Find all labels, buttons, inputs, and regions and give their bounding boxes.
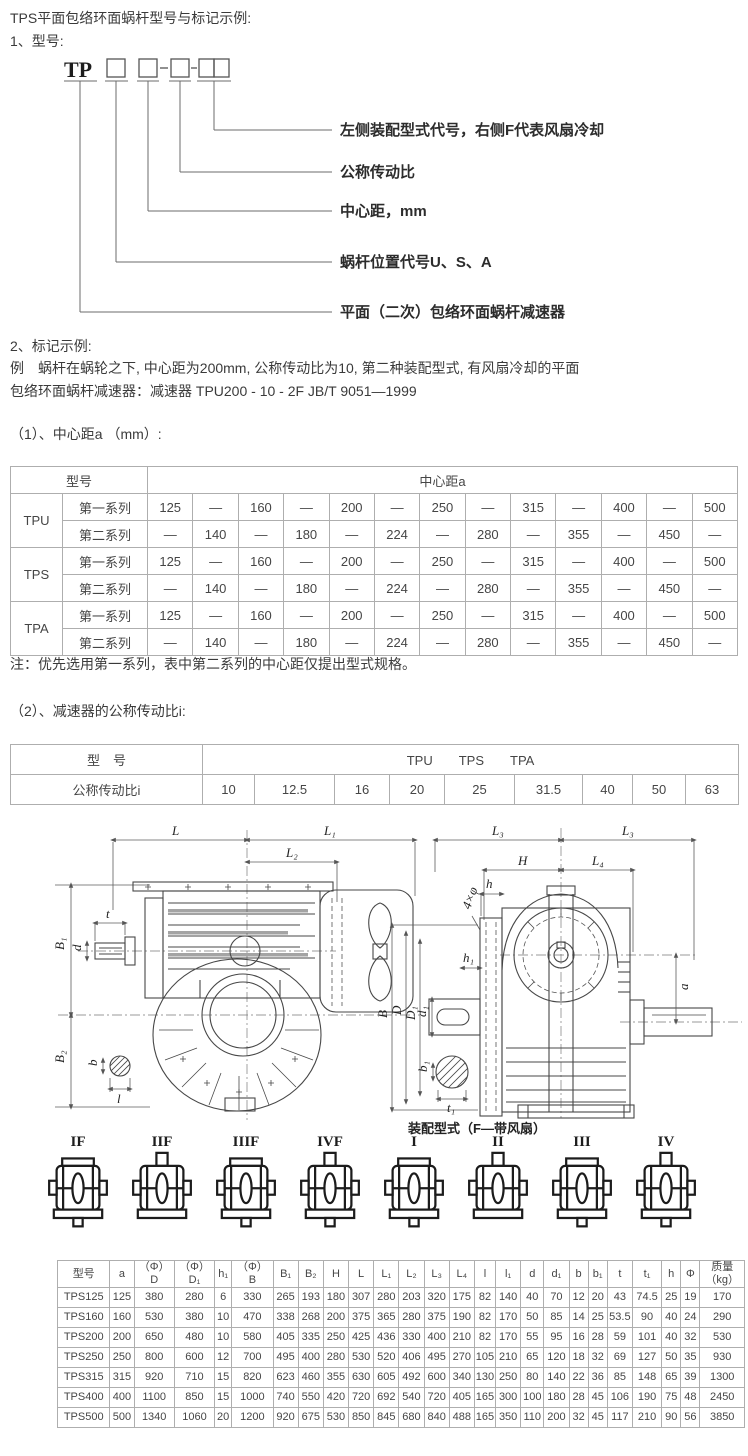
table-cell: 165 (474, 1388, 495, 1408)
table-cell: b (569, 1261, 588, 1288)
table-cell: 22 (569, 1368, 588, 1388)
example-line1: 例 蜗杆在蜗轮之下, 中心距为200mm, 公称传动比为10, 第二种装配型式,… (10, 358, 579, 378)
table-cell: 500 (110, 1408, 134, 1428)
table-cell: 290 (700, 1308, 745, 1328)
table-cell: 160 (110, 1308, 134, 1328)
table-cell: 24 (681, 1308, 700, 1328)
table-cell: 70 (544, 1288, 569, 1308)
table-row: TPS3153159207101582062346035563060549260… (58, 1368, 745, 1388)
table-row: TPU第一系列125—160—200—250—315—400—500 (11, 494, 738, 521)
table-row: TPS4004001100850151000740550420720692540… (58, 1388, 745, 1408)
model-label-position: 蜗杆位置代号U、S、A (340, 253, 492, 271)
sub1-heading: （1）、中心距a （mm）: (10, 424, 162, 444)
table-cell: 第二系列 (63, 521, 148, 548)
table-cell: 28 (588, 1328, 607, 1348)
table-cell: — (148, 521, 193, 548)
table-cell: 495 (424, 1348, 449, 1368)
table-cell: — (465, 602, 510, 629)
dim-B2: B₂ (52, 1050, 67, 1063)
table-cell: 第二系列 (63, 575, 148, 602)
table-cell: 180 (284, 521, 329, 548)
table-cell: 55 (521, 1328, 544, 1348)
table-row: TPS1251253802806330265193180307280203320… (58, 1288, 745, 1308)
table-cell: 6 (215, 1288, 232, 1308)
table-cell: 338 (273, 1308, 298, 1328)
table-cell: 125 (148, 602, 193, 629)
table-cell: 120 (544, 1348, 569, 1368)
table-cell: TPA (11, 602, 63, 656)
table-cell: 470 (232, 1308, 273, 1328)
table-cell: 19 (681, 1288, 700, 1308)
table-cell: B₁ (273, 1261, 298, 1288)
table-cell: 65 (662, 1368, 681, 1388)
dim-L: L (171, 823, 179, 838)
table-cell: 第一系列 (63, 602, 148, 629)
table-cell: 280 (174, 1288, 214, 1308)
table-cell: 1200 (232, 1408, 273, 1428)
model-code-boxes (107, 59, 229, 77)
table-cell: 200 (329, 494, 374, 521)
table-cell: 300 (496, 1388, 521, 1408)
table-cell: 200 (544, 1408, 569, 1428)
table-cell: 190 (449, 1308, 474, 1328)
table-cell: 170 (496, 1328, 521, 1348)
table-cell: 16 (569, 1328, 588, 1348)
table-cell: — (374, 494, 419, 521)
table-cell: — (284, 548, 329, 575)
table-cell: 530 (134, 1308, 174, 1328)
ratio-table: 型 号TPU TPS TPA公称传动比i1012.516202531.54050… (10, 744, 739, 805)
table-cell: — (601, 575, 646, 602)
table-cell: 117 (607, 1408, 632, 1428)
table-cell: 460 (298, 1368, 323, 1388)
table-row: 第二系列—140—180—224—280—355—450— (11, 521, 738, 548)
table-cell: 550 (298, 1388, 323, 1408)
input-shaft-end: d₁ (414, 999, 480, 1035)
table-cell: 405 (273, 1328, 298, 1348)
dim-t: t (106, 906, 110, 921)
table-cell: 170 (700, 1288, 745, 1308)
table-cell: 530 (700, 1328, 745, 1348)
assembly-type-label: IV (628, 1134, 704, 1151)
table-cell: 335 (298, 1328, 323, 1348)
table-cell: （Φ） B (232, 1261, 273, 1288)
assembly-type-i: I (376, 1134, 452, 1236)
example-line2: 包络环面蜗杆减速器：减速器 TPU200 - 10 - 2F JB/T 9051… (10, 381, 417, 401)
table-cell: — (193, 494, 238, 521)
table-cell: 110 (521, 1408, 544, 1428)
table-cell: 224 (374, 575, 419, 602)
table-row: TPS1601605303801047033826820037536528037… (58, 1308, 745, 1328)
table-cell: 315 (511, 602, 556, 629)
table-cell: 45 (588, 1388, 607, 1408)
assembly-type-ii: II (460, 1134, 536, 1236)
table-cell: 270 (449, 1348, 474, 1368)
table-cell: 10 (215, 1328, 232, 1348)
table-cell: 710 (174, 1368, 214, 1388)
table-cell: 200 (329, 602, 374, 629)
table-cell: 20 (390, 775, 445, 805)
table-cell: 32 (681, 1328, 700, 1348)
table-cell: 第一系列 (63, 548, 148, 575)
table-cell: — (284, 602, 329, 629)
table-cell: 16 (335, 775, 390, 805)
dim-d: d (69, 944, 84, 951)
technical-drawing: L L₁ L₂ B₁ B₂ t d (0, 810, 748, 1124)
table-cell: 1340 (134, 1408, 174, 1428)
fin-band (168, 953, 308, 957)
table-cell: 82 (474, 1328, 495, 1348)
table-row: TPS2502508006001270049540028053052040649… (58, 1348, 745, 1368)
table-cell: 50 (521, 1308, 544, 1328)
dim-b1: b₁ (415, 1061, 430, 1072)
table-cell: — (511, 521, 556, 548)
table-cell: 210 (496, 1348, 521, 1368)
dim-a: a (676, 983, 691, 990)
table-cell: 63 (686, 775, 739, 805)
assembly-type-label: III (544, 1134, 620, 1151)
table-cell: 600 (424, 1368, 449, 1388)
table-cell: 492 (399, 1368, 424, 1388)
table-cell: TPS500 (58, 1408, 110, 1428)
table-cell: 265 (273, 1288, 298, 1308)
table-cell: — (511, 575, 556, 602)
table-cell: 405 (449, 1388, 474, 1408)
table-cell: L₂ (399, 1261, 424, 1288)
table-cell: （Φ） D₁ (174, 1261, 214, 1288)
table-cell: 420 (323, 1388, 348, 1408)
table-cell: 280 (374, 1288, 399, 1308)
sub2-heading: （2）、减速器的公称传动比i: (10, 701, 186, 721)
table-cell: 250 (323, 1328, 348, 1348)
table1-note: 注：优先选用第一系列，表中第二系列的中心距仅提出型式规格。 (10, 654, 416, 674)
dim-b: b (85, 1059, 100, 1066)
table-row: 第二系列—140—180—224—280—355—450— (11, 629, 738, 656)
dim-L2: L₂ (285, 845, 298, 860)
table-row: TPS5005001340106020120092067553085084568… (58, 1408, 745, 1428)
table-cell: 500 (692, 602, 737, 629)
keyway-detail-right: b₁ t₁ (415, 1034, 478, 1116)
table-cell: 40 (662, 1308, 681, 1328)
assembly-type-iiif: IIIF (208, 1134, 284, 1236)
section2-heading: 2、标记示例: (10, 336, 92, 356)
table-cell: 250 (496, 1368, 521, 1388)
table-cell: 268 (298, 1308, 323, 1328)
table-cell: 90 (662, 1408, 681, 1428)
table-cell: 100 (521, 1388, 544, 1408)
table-cell: — (238, 629, 283, 656)
table-cell: 650 (134, 1328, 174, 1348)
table-cell: 32 (588, 1348, 607, 1368)
model-label-ratio: 公称传动比 (340, 163, 415, 181)
table-cell: 330 (232, 1288, 273, 1308)
table-cell: l (474, 1261, 495, 1288)
table-cell: 400 (601, 602, 646, 629)
table-cell: TPS250 (58, 1348, 110, 1368)
table-cell: 公称传动比i (11, 775, 203, 805)
table-cell: a (110, 1261, 134, 1288)
table-cell: 101 (632, 1328, 661, 1348)
assembly-type-iii: III (544, 1134, 620, 1236)
table-cell: 315 (511, 548, 556, 575)
table-cell: 406 (399, 1348, 424, 1368)
page-title: TPS平面包络环面蜗杆型号与标记示例: (10, 8, 251, 28)
table-cell: — (692, 575, 737, 602)
reducer-icon (467, 1151, 529, 1231)
table-cell: 12 (215, 1348, 232, 1368)
table-cell: 125 (148, 494, 193, 521)
table-cell: TPS160 (58, 1308, 110, 1328)
table-cell: 36 (588, 1368, 607, 1388)
table-cell: 605 (374, 1368, 399, 1388)
model-label-center: 中心距，mm (340, 202, 427, 220)
table-cell: 200 (329, 548, 374, 575)
table-cell: 140 (193, 629, 238, 656)
table-cell: 315 (110, 1368, 134, 1388)
table-cell: TPU TPS TPA (203, 745, 739, 775)
model-prefix: TP (64, 57, 92, 82)
assembly-type-iif: IIF (124, 1134, 200, 1236)
dim-B1: B₁ (52, 938, 67, 950)
dim-l: l (117, 1091, 121, 1106)
table-cell: 280 (465, 575, 510, 602)
table-cell: 第二系列 (63, 629, 148, 656)
table-cell: 1300 (700, 1368, 745, 1388)
table-cell: 125 (110, 1288, 134, 1308)
table-cell: 450 (647, 575, 692, 602)
table-cell: H (323, 1261, 348, 1288)
table-cell: 50 (633, 775, 686, 805)
table-cell: L₃ (424, 1261, 449, 1288)
reducer-icon (383, 1151, 445, 1231)
assembly-type-if: IF (40, 1134, 116, 1236)
table-cell: 488 (449, 1408, 474, 1428)
table-cell: 530 (349, 1348, 374, 1368)
table-cell: 425 (349, 1328, 374, 1348)
table-cell: 400 (424, 1328, 449, 1348)
reducer-icon (131, 1151, 193, 1231)
dim-L1: L₁ (323, 823, 336, 838)
table-cell: 型号 (11, 467, 148, 494)
table-cell: 280 (465, 629, 510, 656)
table-cell: 105 (474, 1348, 495, 1368)
table-cell: 540 (399, 1388, 424, 1408)
table-cell: 355 (556, 629, 601, 656)
table-cell: 320 (424, 1288, 449, 1308)
table-cell: — (556, 494, 601, 521)
output-shaft: a (630, 955, 712, 1044)
dim-D: D (389, 1005, 404, 1016)
table-row: 型号中心距a (11, 467, 738, 494)
table-cell: 180 (323, 1288, 348, 1308)
table-row: 公称传动比i1012.516202531.5405063 (11, 775, 739, 805)
table-cell: 40 (521, 1288, 544, 1308)
table-cell: 210 (449, 1328, 474, 1348)
table-cell: — (329, 521, 374, 548)
model-label-assembly: 左侧装配型式代号，右侧F代表风扇冷却 (339, 121, 604, 139)
table-cell: 280 (465, 521, 510, 548)
dim-d1: d₁ (414, 1006, 429, 1017)
table-cell: 680 (399, 1408, 424, 1428)
keyway-detail-left: b l (85, 1038, 138, 1106)
top-plate-bolts (145, 884, 311, 890)
table-cell: 82 (474, 1308, 495, 1328)
table-cell: 1060 (174, 1408, 214, 1428)
table-cell: — (556, 602, 601, 629)
table-row: 型 号TPU TPS TPA (11, 745, 739, 775)
table-cell: 95 (544, 1328, 569, 1348)
assembly-type-label: I (376, 1134, 452, 1151)
table-cell: d₁ (544, 1261, 569, 1288)
table-cell: 623 (273, 1368, 298, 1388)
table-cell: L₁ (374, 1261, 399, 1288)
table-cell: 450 (647, 629, 692, 656)
table-cell: 31.5 (515, 775, 583, 805)
table-cell: — (329, 629, 374, 656)
table-cell: 140 (544, 1368, 569, 1388)
table-cell: 75 (662, 1388, 681, 1408)
table-cell: — (465, 494, 510, 521)
table-cell: 25 (662, 1288, 681, 1308)
table-cell: 250 (420, 548, 465, 575)
table-cell: — (601, 629, 646, 656)
table-cell: 18 (569, 1348, 588, 1368)
table-cell: 127 (632, 1348, 661, 1368)
table-cell: 250 (420, 494, 465, 521)
table-cell: 520 (374, 1348, 399, 1368)
reducer-icon (551, 1151, 613, 1231)
table-cell: 10 (215, 1308, 232, 1328)
table-cell: TPS200 (58, 1328, 110, 1348)
fin-band (168, 931, 288, 935)
table-cell: （Φ） D (134, 1261, 174, 1288)
table-cell: 48 (681, 1388, 700, 1408)
table-row: TPA第一系列125—160—200—250—315—400—500 (11, 602, 738, 629)
table-cell: 20 (588, 1288, 607, 1308)
table-cell: 840 (424, 1408, 449, 1428)
table-cell: 180 (544, 1388, 569, 1408)
table-cell: 28 (569, 1388, 588, 1408)
table-cell: — (193, 602, 238, 629)
table-cell: 400 (601, 548, 646, 575)
table-cell: 130 (474, 1368, 495, 1388)
page: TPS平面包络环面蜗杆型号与标记示例: 1、型号: TP 左侧装配型式代号， (0, 0, 748, 1456)
table-cell: 850 (174, 1388, 214, 1408)
dim-H: H (517, 853, 528, 868)
table-cell: 32 (569, 1408, 588, 1428)
table-cell: 400 (601, 494, 646, 521)
table-cell: 140 (193, 521, 238, 548)
table-cell: 25 (445, 775, 515, 805)
assembly-type-ivf: IVF (292, 1134, 368, 1236)
table-cell: 850 (349, 1408, 374, 1428)
table-cell: 436 (374, 1328, 399, 1348)
table-cell: 355 (556, 521, 601, 548)
table-cell: 630 (349, 1368, 374, 1388)
wheel-housing (153, 959, 321, 1111)
table-cell: 675 (298, 1408, 323, 1428)
table-cell: 85 (544, 1308, 569, 1328)
table-cell: — (193, 548, 238, 575)
table-cell: 340 (449, 1368, 474, 1388)
table-cell: 740 (273, 1388, 298, 1408)
table-cell: 15 (215, 1388, 232, 1408)
assembly-type-label: IVF (292, 1134, 368, 1151)
table-cell: 495 (273, 1348, 298, 1368)
model-code-diagram: TP 左侧装配型式代号，右侧F代表风扇冷却 公称传动比 中心距，mm 蜗杆位置 (0, 50, 748, 334)
table-cell: l₁ (496, 1261, 521, 1288)
table-cell: 375 (349, 1308, 374, 1328)
table-cell: d (521, 1261, 544, 1288)
table-cell: 250 (420, 602, 465, 629)
table-cell: 25 (588, 1308, 607, 1328)
reducer-icon (47, 1151, 109, 1231)
assembly-type-label: IIIF (208, 1134, 284, 1151)
dim-B: B (375, 1010, 390, 1018)
section1-heading: 1、型号: (10, 31, 64, 51)
table-cell: — (238, 575, 283, 602)
table-cell: — (284, 494, 329, 521)
table-cell: 250 (110, 1348, 134, 1368)
table-cell: — (647, 602, 692, 629)
table-cell: 12 (569, 1288, 588, 1308)
table-cell: 35 (681, 1348, 700, 1368)
table-cell: — (647, 548, 692, 575)
dim-L3b: L₃ (621, 823, 634, 838)
table-cell: 14 (569, 1308, 588, 1328)
table-cell: 160 (238, 494, 283, 521)
table-cell: 315 (511, 494, 556, 521)
table-cell: 355 (556, 575, 601, 602)
table-cell: 型 号 (11, 745, 203, 775)
table-row: 型号a（Φ） D（Φ） D₁h₁（Φ） BB₁B₂HLL₁L₂L₃L₄ll₁dd… (58, 1261, 745, 1288)
table-cell: 2450 (700, 1388, 745, 1408)
table-cell: 20 (215, 1408, 232, 1428)
table-cell: 224 (374, 629, 419, 656)
table-cell: 165 (474, 1408, 495, 1428)
dim-L4: L₄ (591, 853, 604, 868)
table-cell: 450 (647, 521, 692, 548)
table-cell: 720 (424, 1388, 449, 1408)
assembly-type-label: IF (40, 1134, 116, 1151)
table-cell: 148 (632, 1368, 661, 1388)
table-cell: — (238, 521, 283, 548)
table-cell: 720 (349, 1388, 374, 1408)
right-view: L₃ L₃ H L₄ h 4×φ h₁ B D D₁ (375, 823, 742, 1118)
table-cell: 280 (399, 1308, 424, 1328)
table-cell: 350 (496, 1408, 521, 1428)
table-cell: 3850 (700, 1408, 745, 1428)
dim-h: h (486, 876, 493, 891)
table-cell: 160 (238, 548, 283, 575)
table-row: TPS2002006504801058040533525042543633040… (58, 1328, 745, 1348)
table-cell: 质量 （kg） (700, 1261, 745, 1288)
center-distance-table: 型号中心距aTPU第一系列125—160—200—250—315—400—500… (10, 466, 738, 656)
table-cell: 224 (374, 521, 419, 548)
reducer-icon (299, 1151, 361, 1231)
table-cell: 74.5 (632, 1288, 661, 1308)
table-cell: 170 (496, 1308, 521, 1328)
table-cell: 型号 (58, 1261, 110, 1288)
table-cell: 175 (449, 1288, 474, 1308)
table-cell: 12.5 (255, 775, 335, 805)
table-cell: — (692, 629, 737, 656)
table-cell: — (465, 548, 510, 575)
table-cell: 中心距a (148, 467, 738, 494)
table-cell: — (148, 629, 193, 656)
table-cell: 56 (681, 1408, 700, 1428)
spec-table: 型号a（Φ） D（Φ） D₁h₁（Φ） BB₁B₂HLL₁L₂L₃L₄ll₁dd… (57, 1260, 745, 1428)
